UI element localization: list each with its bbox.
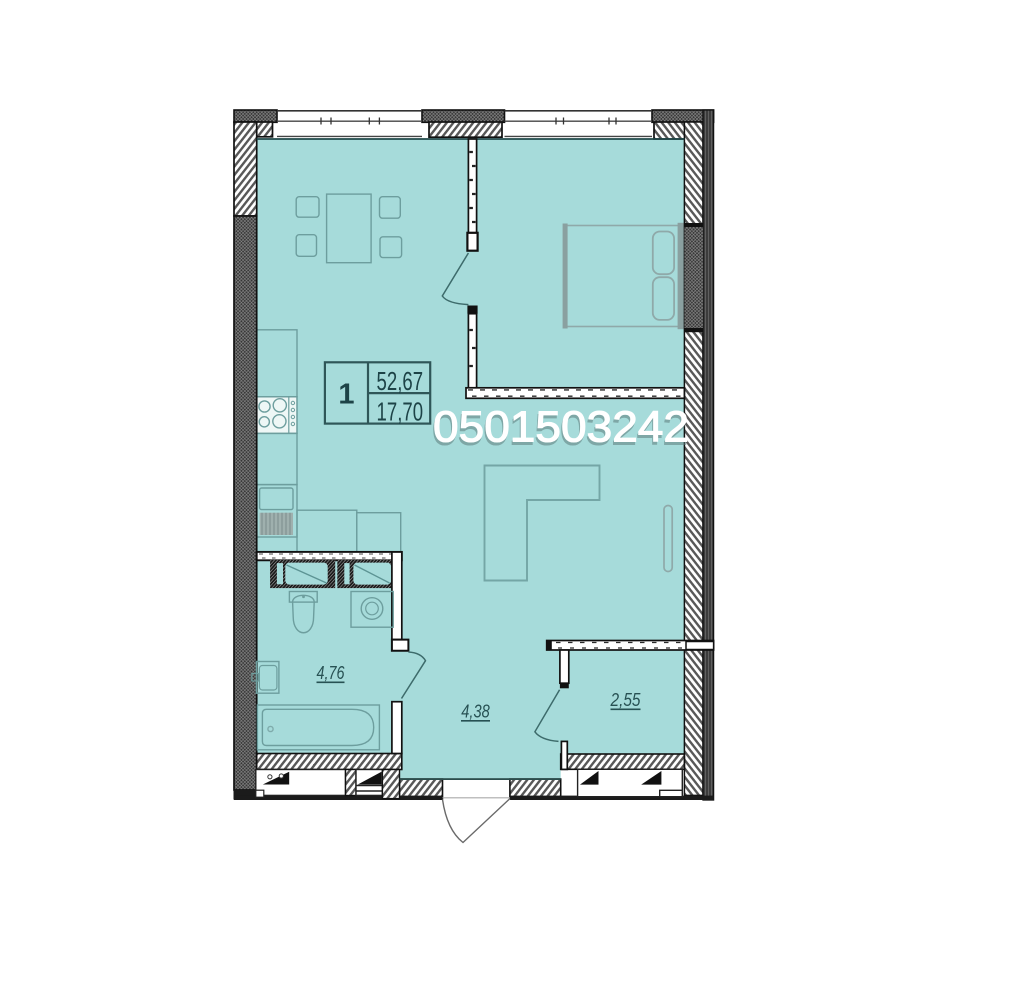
svg-text:1: 1 [338,379,354,411]
svg-text:2,55: 2,55 [610,690,642,710]
svg-text:4,76: 4,76 [317,663,346,683]
svg-text:17,70: 17,70 [377,396,424,426]
svg-text:0501503242: 0501503242 [433,404,689,452]
svg-text:4,38: 4,38 [461,702,490,722]
svg-text:52,67: 52,67 [377,366,424,396]
